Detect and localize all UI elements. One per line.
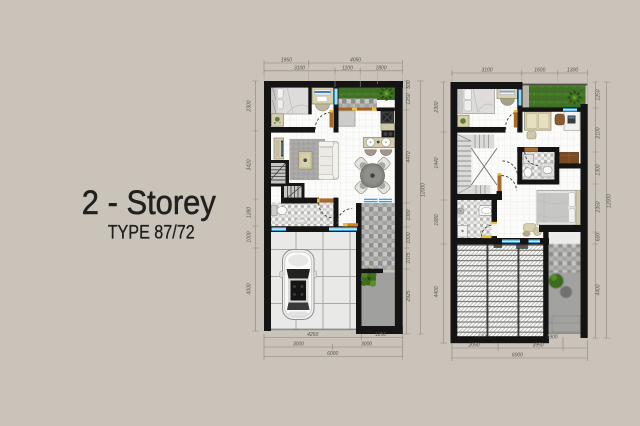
svg-text:1250: 1250 (375, 332, 386, 338)
svg-text:1250: 1250 (406, 93, 412, 104)
svg-text:1100: 1100 (342, 65, 353, 71)
svg-text:1300: 1300 (596, 164, 602, 175)
svg-text:2300: 2300 (434, 101, 440, 113)
svg-text:1680: 1680 (434, 214, 440, 225)
svg-text:1900: 1900 (546, 335, 557, 341)
svg-text:4400: 4400 (596, 284, 602, 295)
svg-text:TYPE 87/72: TYPE 87/72 (108, 223, 195, 244)
svg-text:4250: 4250 (307, 332, 318, 338)
svg-text:1080: 1080 (406, 209, 412, 220)
svg-text:1950: 1950 (281, 58, 292, 64)
svg-text:600: 600 (596, 233, 602, 242)
svg-text:1000: 1000 (406, 232, 412, 243)
svg-text:2925: 2925 (406, 290, 412, 302)
svg-text:3420: 3420 (247, 159, 253, 170)
svg-text:1300: 1300 (567, 68, 578, 74)
svg-text:3100: 3100 (294, 65, 305, 71)
svg-text:1250: 1250 (596, 89, 602, 100)
svg-text:1440: 1440 (434, 157, 440, 168)
svg-text:1280: 1280 (247, 207, 253, 218)
svg-text:4400: 4400 (434, 286, 440, 297)
svg-text:3100: 3100 (481, 68, 492, 74)
svg-text:2050: 2050 (467, 343, 479, 349)
svg-text:1800: 1800 (375, 65, 386, 71)
svg-text:3000: 3000 (293, 342, 304, 348)
svg-text:12000: 12000 (607, 194, 613, 208)
svg-text:6000: 6000 (512, 353, 523, 359)
svg-text:2350: 2350 (596, 201, 602, 213)
svg-text:2300: 2300 (247, 100, 253, 112)
svg-text:1000: 1000 (247, 231, 253, 242)
svg-text:3000: 3000 (361, 342, 372, 348)
svg-text:2 - Storey: 2 - Storey (82, 184, 217, 222)
svg-text:3400: 3400 (477, 334, 488, 340)
svg-text:4000: 4000 (247, 283, 253, 294)
svg-text:12000: 12000 (421, 183, 427, 197)
svg-text:1075: 1075 (406, 252, 412, 263)
svg-text:1600: 1600 (534, 68, 545, 74)
svg-text:4050: 4050 (350, 58, 361, 64)
svg-text:4470: 4470 (406, 151, 412, 162)
svg-text:2100: 2100 (596, 127, 602, 139)
svg-text:500: 500 (406, 80, 412, 89)
svg-text:3950: 3950 (532, 343, 543, 349)
svg-text:6000: 6000 (327, 351, 338, 357)
